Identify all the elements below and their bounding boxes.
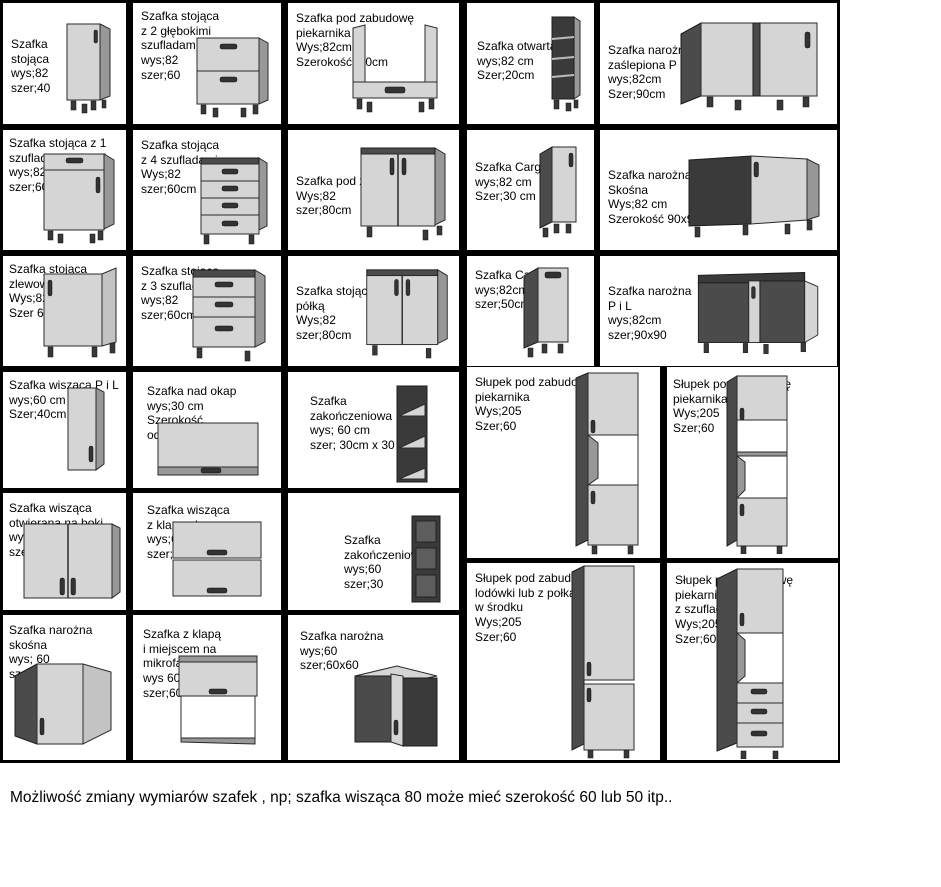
tall-oven-column-with-drawers-illustration (709, 567, 797, 759)
wall-cabinet-two-flaps-illustration (169, 516, 267, 602)
cell-flap-microwave-cabinet: Szafka z klapą i miejscem na mikrofale w… (133, 615, 281, 760)
cell-tall-fridge-column: Słupek pod zabudowę lodówki lub z połkam… (467, 563, 660, 760)
cabinet-three-drawers-illustration (187, 262, 271, 362)
catalog-grid: Szafka stojąca wys;82 szer;40 Szafka sto… (0, 0, 840, 763)
dark-end-shelf-unit-illustration (407, 512, 445, 606)
tall-oven-microwave-column-illustration (719, 372, 799, 554)
over-hood-cabinet-illustration (153, 418, 265, 482)
cabinet-label: Szafka narożna P i L wys;82cm szer;90x90 (608, 284, 691, 343)
cell-wall-with-flaps: Szafka wisząca z klapami wys;60cm szer;8… (133, 493, 281, 610)
cell-corner-blind: Szafka narożna zaślepiona P i L wys;82cm… (600, 3, 837, 124)
cell-sink-base-60: Szafka stojąca zlewowa Wys;82 Szer 60cm (3, 256, 126, 366)
open-end-shelf-unit-illustration (391, 382, 433, 486)
cabinet-label: Szafka stojąca wys;82 szer;40 (11, 37, 50, 96)
wall-cabinet-double-door-illustration (20, 516, 124, 606)
tall-oven-housing-column-illustration (568, 370, 650, 556)
base-cabinet-single-door-illustration (62, 16, 114, 116)
cell-end-shelf-30x30: Szafka zakończeniowa wys; 60 cm szer; 30… (288, 372, 459, 488)
cabinet-catalog-page: Szafka stojąca wys;82 szer;40 Szafka sto… (0, 0, 941, 887)
cell-end-shelf-60: Szafka zakończeniowa wys;60 szer;30 (288, 493, 459, 610)
footer-note: Możliwość zmiany wymiarów szafek , np; s… (10, 789, 672, 807)
cell-corner-pl-base: Szafka narożna P i L wys;82cm szer;90x90 (600, 256, 837, 366)
built-in-oven-base-frame-illustration (345, 18, 445, 122)
cell-sink-base-80: Szafka pod zlew Wys;82 szer;80cm (288, 130, 459, 250)
cell-base-2-deep-drawers: Szafka stojąca z 2 głębokimi szufladami … (133, 3, 281, 124)
cell-base-cabinet-40: Szafka stojąca wys;82 szer;40 (3, 3, 126, 124)
double-door-shelf-cabinet-illustration (361, 262, 453, 362)
cabinet-label: Szafka otwarta wys;82 cm Szer;20cm (477, 39, 556, 83)
cell-hood-wall-cabinet: Szafka nad okap wys;30 cm Szerokość od 4… (133, 372, 281, 488)
cell-corner-diagonal-wall: Szafka narożna skośna wys; 60 szer;60x60 (3, 615, 126, 760)
tall-fridge-housing-column-illustration (564, 564, 644, 760)
cell-base-with-shelf: Szafka stojąca z półką Wys;82 szer;80cm (288, 256, 459, 366)
wall-cabinet-single-door-illustration (62, 382, 110, 478)
cell-base-3-drawers: Szafka stojąca z 3 szufladami wys;82 sze… (133, 256, 281, 366)
cell-open-cabinet-20: Szafka otwarta wys;82 cm Szer;20cm (467, 3, 594, 124)
cell-tall-oven-column: Słupek pod zabudowę piekarnika Wys;205 S… (467, 367, 660, 558)
cell-cargo-30: Szafka Cargo wys;82 cm Szer;30 cm (467, 130, 594, 250)
blind-corner-cabinet-illustration (677, 16, 827, 116)
cell-wall-cabinet-pl: Szafka wisząca P i L wys;60 cm Szer;40cm (3, 372, 126, 488)
cell-tall-oven-microwave-column: Słupek pod zabudowę piekarnika i mikrofa… (667, 367, 838, 558)
wide-cargo-cabinet-illustration (518, 262, 580, 360)
cabinet-drawer-and-door-illustration (38, 144, 122, 244)
diagonal-corner-cabinet-illustration (681, 146, 829, 242)
cabinet-four-drawers-illustration (197, 148, 271, 246)
cell-corner-diagonal-base: Szafka narożna Skośna Wys;82 cm Szerokoś… (600, 130, 837, 250)
sink-cabinet-single-door-illustration (36, 262, 122, 362)
cell-wall-side-opening: Szafka wisząca otwierana na boki wys;60c… (3, 493, 126, 610)
cell-corner-wall-60x60: Szafka narożna wys;60 szer;60x60 (288, 615, 459, 760)
cabinet-two-deep-drawers-illustration (193, 26, 273, 120)
corner-wall-cabinet-illustration (345, 660, 445, 752)
narrow-open-shelf-unit-illustration (546, 11, 586, 113)
cell-oven-housing-base: Szafka pod zabudowę piekarnika Wys;82cm … (288, 3, 459, 124)
cell-base-4-drawers: Szafka stojąca z 4 szufladami Wys;82 sze… (133, 130, 281, 250)
narrow-cargo-cabinet-illustration (534, 140, 584, 242)
diagonal-corner-wall-cabinet-illustration (9, 658, 119, 754)
corner-cabinet-left-right-illustration (689, 266, 829, 363)
flap-cabinet-microwave-space-illustration (171, 650, 267, 750)
cell-tall-oven-drawers-column: Słupek pod zabudowę piekarnika z szuflad… (667, 563, 838, 760)
cell-cargo-50: Szafka Cargo wys;82cm szer;50cm (467, 256, 594, 366)
double-door-sink-cabinet-illustration (355, 140, 451, 244)
cell-base-1-drawer-door: Szafka stojąca z 1 szufladą i dzwiami wy… (3, 130, 126, 250)
